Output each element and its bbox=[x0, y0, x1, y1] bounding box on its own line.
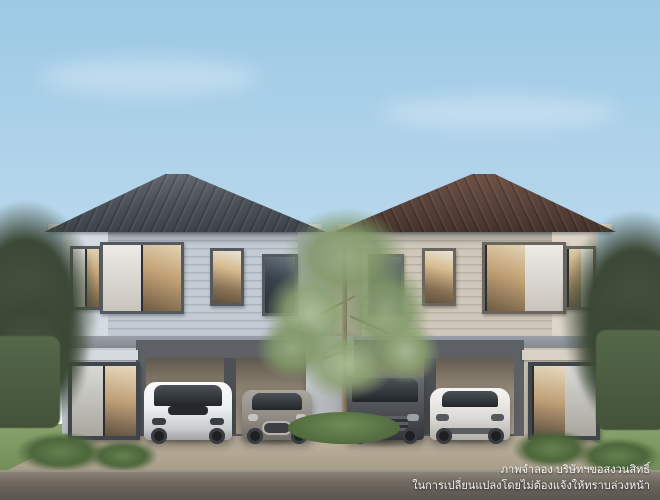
car-white-hatchback bbox=[144, 382, 232, 440]
car-headlight bbox=[436, 414, 449, 421]
hedge-right bbox=[596, 330, 660, 430]
car-hood-accent bbox=[168, 406, 208, 415]
window-curtain bbox=[525, 245, 563, 311]
disclaimer-text: ภาพจำลอง บริษัทฯขอสงวนสิทธิ์ ในการเปลี่ย… bbox=[412, 463, 650, 495]
car-wheel bbox=[151, 428, 167, 444]
car-headlight bbox=[210, 418, 224, 425]
tree-foliage bbox=[372, 320, 440, 384]
lawn-shrub-left bbox=[88, 440, 158, 472]
right-house-window-wide bbox=[482, 242, 566, 314]
car-headlight bbox=[248, 414, 258, 421]
left-house-roof bbox=[44, 174, 326, 232]
car-headlight bbox=[491, 414, 504, 421]
car-headlight bbox=[407, 414, 419, 421]
car-wheel bbox=[488, 428, 504, 444]
cloud bbox=[40, 58, 260, 96]
left-house-window-wide bbox=[100, 242, 184, 314]
hedge-left bbox=[0, 336, 60, 428]
car-headlight bbox=[152, 418, 166, 425]
window-curtain bbox=[103, 245, 141, 311]
house-rendering-scene: ภาพจำลอง บริษัทฯขอสงวนสิทธิ์ ในการเปลี่ย… bbox=[0, 0, 660, 500]
tree-foliage bbox=[256, 318, 328, 380]
tree-base-shrub bbox=[288, 412, 400, 444]
disclaimer-line-1: ภาพจำลอง บริษัทฯขอสงวนสิทธิ์ bbox=[412, 463, 650, 479]
car-wheel bbox=[402, 428, 418, 444]
left-house-window-small bbox=[210, 248, 244, 306]
window-lit-glass bbox=[485, 245, 525, 311]
car-wheel bbox=[436, 428, 452, 444]
car-windshield bbox=[154, 385, 222, 406]
window-lit-interior bbox=[103, 366, 136, 436]
car-grille bbox=[264, 423, 290, 433]
disclaimer-line-2: ในการเปลี่ยนแปลงโดยไม่ต้องแจ้งให้ทราบล่ว… bbox=[412, 479, 650, 495]
car-wheel bbox=[209, 428, 225, 444]
car-wheel bbox=[247, 428, 263, 444]
car-windshield bbox=[442, 391, 498, 407]
window-lit-interior bbox=[532, 366, 565, 436]
car-windshield bbox=[252, 393, 302, 410]
cloud bbox=[380, 96, 620, 130]
window-lit-glass bbox=[141, 245, 181, 311]
car-white-sedan bbox=[430, 388, 510, 440]
